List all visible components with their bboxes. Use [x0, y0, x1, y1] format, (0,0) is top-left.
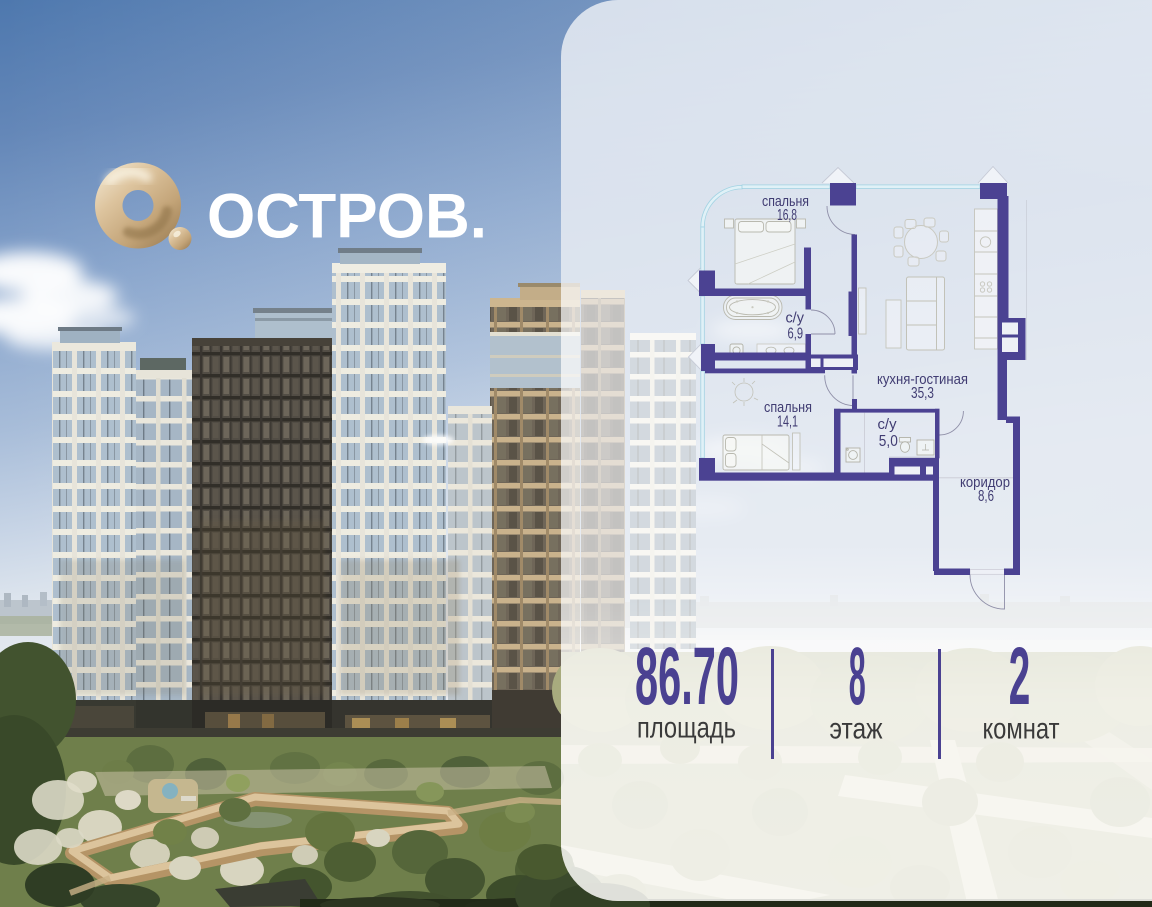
svg-text:16,8: 16,8 — [777, 207, 797, 224]
svg-text:с/у: с/у — [878, 416, 897, 433]
svg-text:с/у: с/у — [785, 310, 804, 327]
svg-text:86.70: 86.70 — [635, 631, 739, 722]
svg-text:14,1: 14,1 — [777, 414, 798, 431]
svg-text:5,0: 5,0 — [879, 433, 898, 450]
svg-text:ОСТРОВ.: ОСТРОВ. — [207, 182, 487, 252]
svg-text:комнат: комнат — [983, 713, 1060, 746]
svg-text:6,9: 6,9 — [788, 326, 804, 343]
svg-text:8: 8 — [849, 631, 866, 722]
svg-text:35,3: 35,3 — [911, 385, 934, 402]
svg-text:8,6: 8,6 — [978, 488, 994, 505]
svg-text:площадь: площадь — [637, 712, 736, 745]
svg-text:2: 2 — [1009, 631, 1031, 722]
svg-text:этаж: этаж — [830, 713, 883, 746]
